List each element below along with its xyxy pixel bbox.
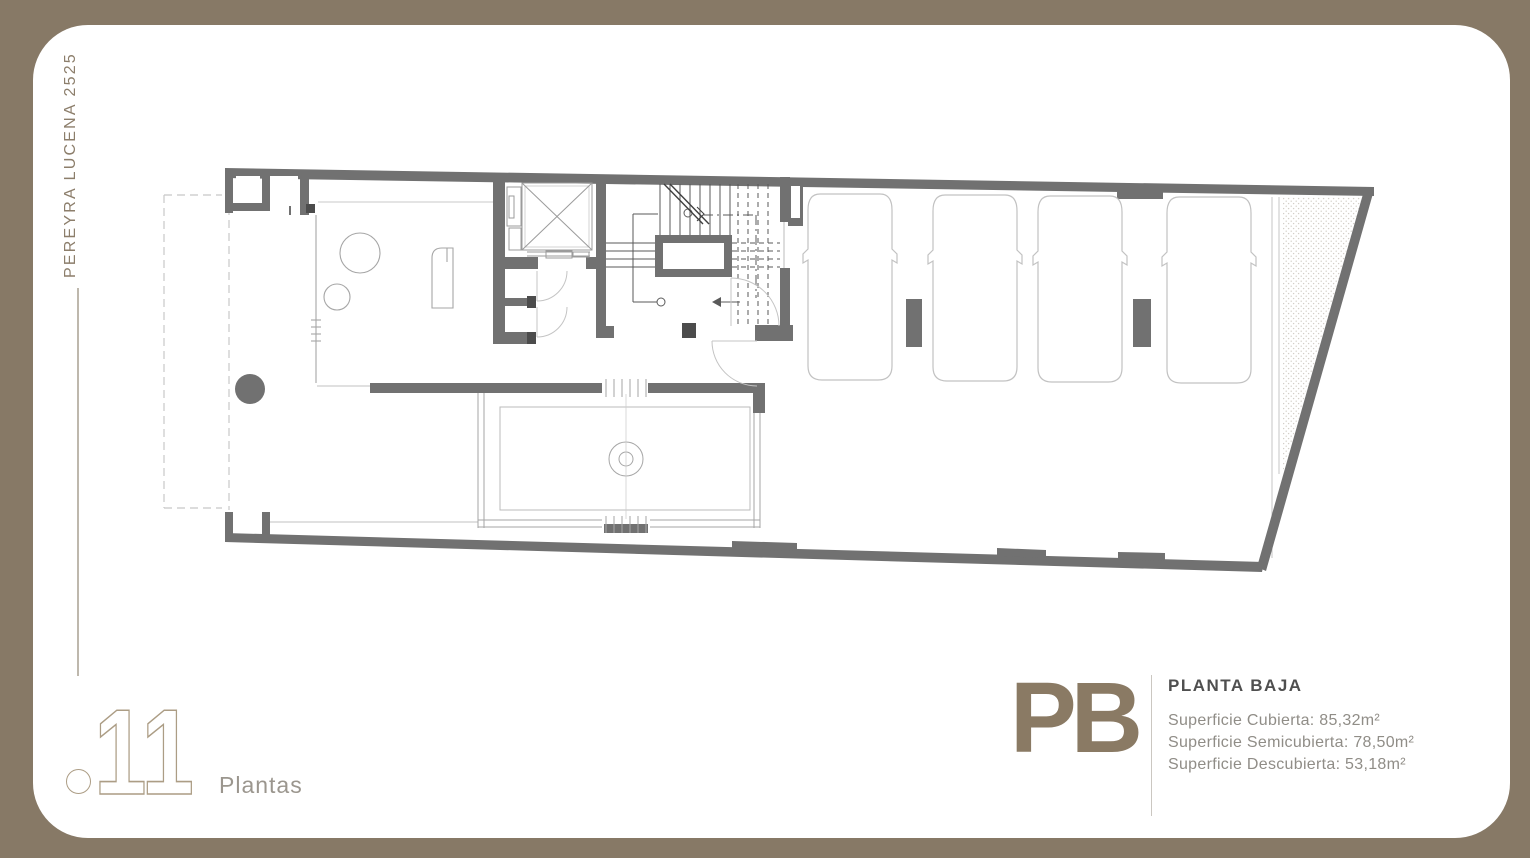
- plan-bathroom: [537, 271, 567, 337]
- floor-title: PLANTA BAJA: [1168, 676, 1498, 696]
- floor-areas: Superficie Cubierta: 85,32m² Superficie …: [1168, 710, 1498, 776]
- plan-elevator: [507, 183, 592, 258]
- plantas-count: 11: [92, 697, 212, 803]
- area-cubierta: Superficie Cubierta: 85,32m²: [1168, 710, 1498, 732]
- footer-divider: [1151, 675, 1152, 816]
- plan-wall-openings: [234, 176, 800, 533]
- plantas-badge-circle: [66, 769, 91, 794]
- plan-patio: [478, 379, 760, 533]
- plantas-count-number: 11: [94, 697, 194, 803]
- plantas-label: Plantas: [219, 772, 303, 799]
- floor-info: PLANTA BAJA Superficie Cubierta: 85,32m²…: [1168, 676, 1498, 776]
- plan-walls: [225, 168, 1374, 572]
- plan-cars: [803, 194, 1256, 383]
- side-rule: [77, 288, 79, 676]
- area-descubierta: Superficie Descubierta: 53,18m²: [1168, 754, 1498, 776]
- area-semicubierta: Superficie Semicubierta: 78,50m²: [1168, 732, 1498, 754]
- plan-showroom: [270, 202, 493, 522]
- page: PEREYRA LUCENA 2525 11 Plantas PB PLANTA…: [0, 0, 1530, 858]
- plan-lot-lines: [164, 195, 229, 510]
- car-outline: [928, 195, 1022, 381]
- floor-code: PB: [1010, 668, 1137, 768]
- car-outline: [1162, 197, 1256, 383]
- car-outline: [1033, 196, 1127, 382]
- car-outline: [803, 194, 897, 380]
- project-name-label: PEREYRA LUCENA 2525: [62, 78, 80, 278]
- tree: [235, 374, 265, 404]
